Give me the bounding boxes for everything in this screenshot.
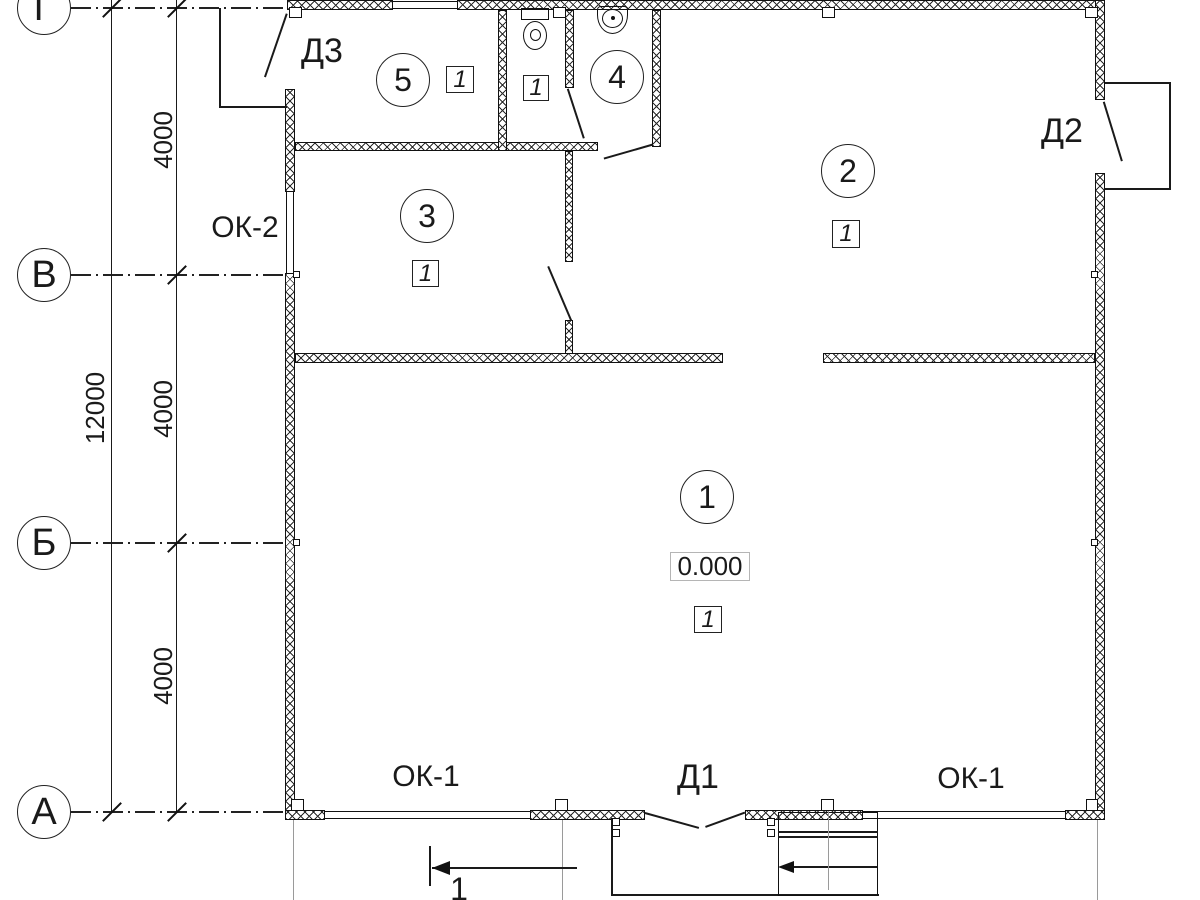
- door-post-marker: [767, 829, 775, 837]
- extension-line: [293, 820, 294, 900]
- column-marker: [291, 799, 304, 811]
- wall-bottom-mid-left: [530, 810, 645, 820]
- door-post-marker: [612, 829, 620, 837]
- dim-tick: [102, 0, 122, 18]
- window-label-ok1-right: ОК-1: [931, 762, 1011, 796]
- wall-left-main: [285, 273, 295, 820]
- column-marker: [821, 799, 834, 811]
- door-post-marker: [612, 818, 620, 826]
- room-bubble-2: 2: [821, 144, 875, 198]
- axis-label-v: В: [31, 254, 56, 297]
- room-bubble-4: 4: [590, 50, 644, 104]
- room-bubble-3: 3: [400, 189, 454, 243]
- column-marker: [1086, 799, 1098, 811]
- room-number: 5: [394, 62, 412, 99]
- dim-tick: [167, 0, 187, 18]
- porch-d3-left: [219, 8, 221, 107]
- level-mark: 0.000: [670, 552, 750, 581]
- window-label-ok1-left: ОК-1: [386, 760, 466, 794]
- axis-bubble-b: Б: [17, 516, 71, 570]
- wall-bottom-corner-right: [1065, 810, 1105, 820]
- door-label-d3: Д3: [282, 33, 362, 69]
- door-label-d2: Д2: [1022, 113, 1102, 149]
- door-leaf-d2: [1103, 102, 1123, 162]
- finish-mark-room5: 1: [446, 66, 474, 93]
- door-label-d1: Д1: [658, 759, 738, 795]
- finish-mark-room2: 1: [832, 220, 860, 248]
- stairs-center-line: [828, 802, 829, 890]
- porch-d2-top: [1105, 82, 1170, 84]
- window-ok1-left: [325, 811, 530, 819]
- room-number: 3: [418, 198, 436, 235]
- dim-text-4000-top: 4000: [149, 100, 177, 180]
- column-marker: [289, 7, 302, 18]
- door-leaf-d1-left: [645, 812, 699, 828]
- toilet-flush-icon: [530, 29, 541, 41]
- sink-drain-icon: [611, 16, 615, 20]
- wall-mid-left: [295, 353, 723, 363]
- wall-washroom-right: [652, 10, 661, 147]
- dim-line-overall: [111, 0, 112, 812]
- window-label-ok2: ОК-2: [205, 211, 285, 245]
- column-marker: [555, 799, 568, 811]
- axis-tie-marker: [293, 539, 300, 546]
- wall-wc-divider: [565, 10, 574, 88]
- wall-wc-left: [498, 10, 507, 151]
- finish-mark-room3: 1: [412, 260, 439, 287]
- finish-mark-room1: 1: [694, 606, 722, 633]
- section-mark-arrow-line: [432, 867, 577, 869]
- room-bubble-5: 5: [376, 53, 430, 107]
- extension-line: [562, 820, 563, 900]
- section-mark-line: [429, 846, 431, 886]
- floor-plan-canvas: 12000 4000 4000 4000 Г В Б А: [0, 0, 1200, 900]
- axis-bubble-g: Г: [17, 0, 71, 35]
- porch-d3-bottom: [219, 106, 287, 108]
- window-ok2: [286, 192, 294, 273]
- wall-room3-right-upper: [565, 151, 573, 262]
- wall-bottom-corner-left: [285, 810, 325, 820]
- axis-label-a: А: [31, 791, 56, 834]
- room-number: 1: [698, 479, 716, 516]
- axis-label-g: Г: [34, 0, 55, 30]
- wall-room5-bottom: [295, 142, 598, 151]
- wall-top-left-segment: [287, 0, 393, 10]
- wall-left-upper: [285, 89, 295, 192]
- extension-line: [1097, 820, 1098, 900]
- window-top: [393, 1, 457, 9]
- wall-room3-right-stub: [565, 320, 573, 355]
- stairs-direction-arrowhead: [778, 861, 794, 873]
- column-marker: [822, 7, 835, 18]
- room-number: 2: [839, 153, 857, 190]
- axis-label-b: Б: [32, 522, 57, 565]
- stairs-direction-line: [782, 866, 877, 868]
- door-leaf-wc: [567, 89, 584, 139]
- door-post-marker: [767, 818, 775, 826]
- axis-bubble-a: А: [17, 785, 71, 839]
- door-leaf-washroom: [604, 144, 653, 159]
- finish-mark-wc: 1: [523, 75, 549, 101]
- axis-tie-marker: [1091, 539, 1098, 546]
- room-number: 4: [608, 59, 626, 96]
- porch-d2-bottom: [1105, 188, 1170, 190]
- column-marker: [1085, 7, 1098, 18]
- wall-mid-right: [823, 353, 1095, 363]
- axis-tie-marker: [1091, 271, 1098, 278]
- dim-text-4000-bot: 4000: [149, 636, 177, 716]
- porch-d2-right: [1169, 82, 1171, 190]
- dim-text-4000-mid: 4000: [149, 369, 177, 449]
- door-leaf-d1-right: [705, 812, 745, 828]
- column-marker: [553, 7, 566, 18]
- dim-text-overall: 12000: [81, 368, 109, 448]
- section-mark-label: 1: [444, 872, 474, 900]
- door-leaf-room3: [547, 266, 571, 321]
- axis-bubble-v: В: [17, 248, 71, 302]
- toilet-icon: [521, 8, 549, 20]
- axis-tie-marker: [293, 271, 300, 278]
- window-ok1-right: [863, 811, 1065, 819]
- room-bubble-1: 1: [680, 470, 734, 524]
